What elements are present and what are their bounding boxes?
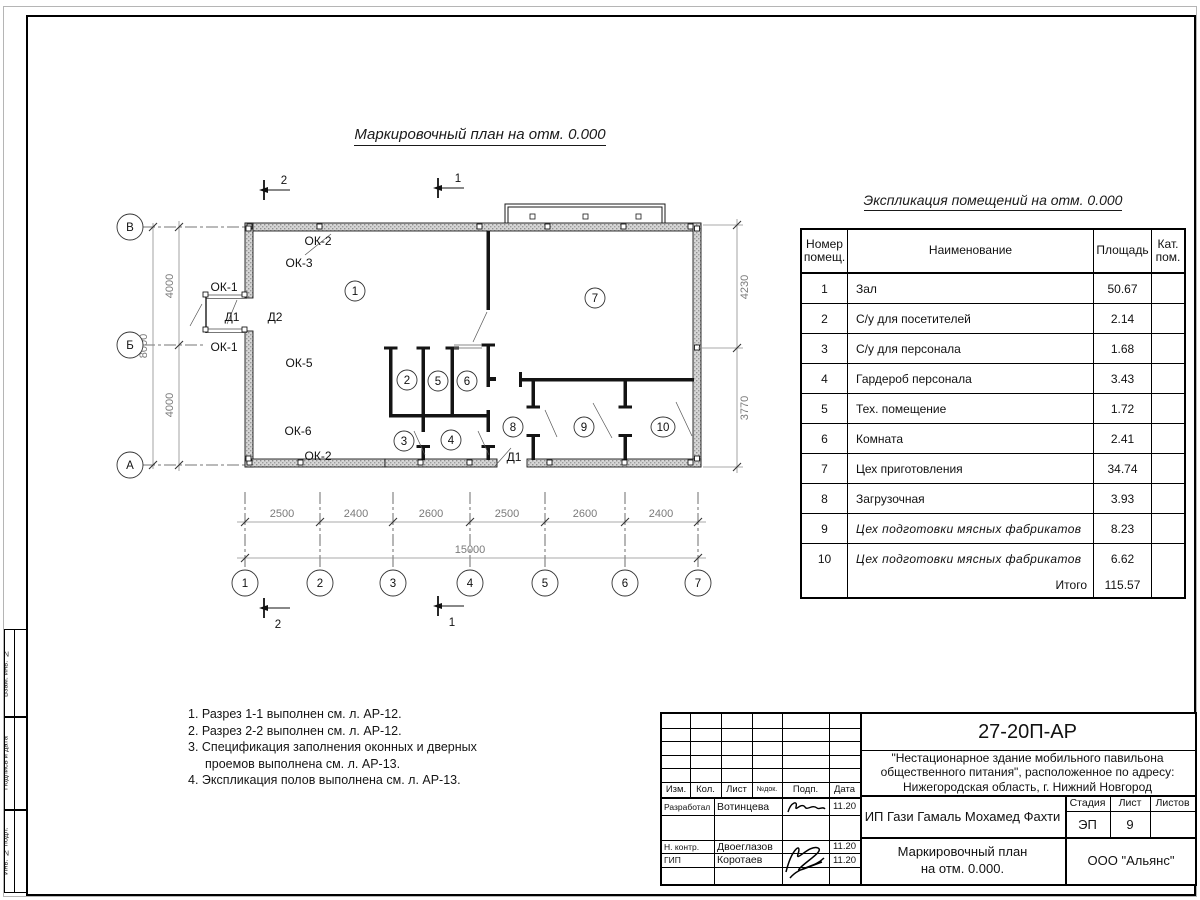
total-cat-cell	[1152, 573, 1184, 597]
project-name: "Нестационарное здание мобильного павиль…	[862, 750, 1193, 795]
room-number: 8	[510, 422, 516, 434]
room-number: 2	[404, 375, 410, 387]
room-number: 10	[657, 422, 670, 434]
dim-label: 2400	[649, 508, 673, 520]
room-name-cell: Гардероб персонала	[848, 364, 1094, 393]
section-marker-1-top: 1	[433, 173, 464, 198]
svg-text:1: 1	[449, 617, 455, 629]
role-date: 11.20	[829, 798, 860, 815]
sheets-label: Листов	[1150, 795, 1195, 811]
room-number: 6	[464, 376, 470, 388]
room-cat-cell	[1152, 394, 1184, 423]
col-izm: Изм.	[662, 782, 690, 797]
svg-text:3: 3	[390, 578, 396, 590]
room-cat-cell	[1152, 304, 1184, 333]
door-label: Д1	[225, 310, 240, 324]
wall-left-upper	[245, 223, 253, 298]
room-number: 5	[435, 376, 441, 388]
total-empty-cell	[802, 573, 848, 597]
dim-label: 2500	[495, 508, 519, 520]
title-block: Изм. Кол. Лист №док. Подп. Дата Разработ…	[660, 712, 1197, 886]
room-area-cell: 50.67	[1094, 274, 1152, 303]
room-name-cell: Зал	[848, 274, 1094, 303]
room-cat-cell	[1152, 544, 1184, 573]
col-data: Дата	[829, 782, 860, 797]
dim-label: 2600	[573, 508, 597, 520]
wall-bottom-mid	[385, 459, 497, 467]
note-line: 4. Экспликация полов выполнена см. л. АР…	[188, 772, 524, 789]
table-row: 2 С/у для посетителей 2.14	[802, 304, 1184, 334]
room-number: 1	[352, 286, 358, 298]
section-marker-2-bottom: 2	[259, 598, 290, 631]
room-number: 7	[592, 293, 598, 305]
room-name-cell: Цех подготовки мясных фабрикатов	[848, 514, 1094, 543]
dim-total-label: 15000	[455, 544, 486, 556]
window-label: ОК-1	[211, 280, 238, 294]
drawing-sheet: Взам. инв. № Подпись и дата Инв. № подл.…	[0, 0, 1200, 900]
dim-label: 4000	[164, 274, 176, 298]
room-number-cell: 3	[802, 334, 848, 363]
room-number-cell: 7	[802, 454, 848, 483]
room-name-cell: Цех приготовления	[848, 454, 1094, 483]
dim-label: 3770	[739, 396, 751, 420]
room-number: 4	[448, 435, 455, 447]
doc-number: 27-20П-АР	[860, 714, 1195, 750]
window-label: ОК-2	[305, 449, 332, 463]
section-marker-2-top: 2	[259, 175, 290, 200]
room-number-cell: 8	[802, 484, 848, 513]
sheet-title: Маркировочный план на отм. 0.000.	[860, 837, 1065, 884]
section-markers: 2 1 2 1	[259, 173, 464, 631]
room-cat-cell	[1152, 514, 1184, 543]
room-number-cell: 5	[802, 394, 848, 423]
room-number-cell: 10	[802, 544, 848, 573]
room-area-cell: 6.62	[1094, 544, 1152, 573]
room-name-cell: С/у для персонала	[848, 334, 1094, 363]
sheet-label: Лист	[1110, 795, 1150, 811]
svg-text:7: 7	[695, 578, 701, 590]
door-label: Д2	[268, 310, 283, 324]
axis-labels-left: В Б А	[126, 222, 134, 472]
client-name: ИП Гази Гамаль Мохамед Фахти	[860, 795, 1065, 837]
header-room-number: Номер помещ.	[802, 230, 848, 272]
room-legend-table: Номер помещ. Наименование Площадь Кат. п…	[800, 228, 1186, 599]
svg-text:2: 2	[281, 175, 287, 187]
svg-text:1: 1	[242, 578, 248, 590]
dim-label: 4000	[164, 393, 176, 417]
note-line: 3. Спецификация заполнения оконных и две…	[188, 739, 524, 772]
col-kol: Кол.	[690, 782, 721, 797]
note-line: 1. Разрез 1-1 выполнен см. л. АР-12.	[188, 706, 524, 723]
table-row: 8 Загрузочная 3.93	[802, 484, 1184, 514]
svg-text:5: 5	[542, 578, 548, 590]
room-cat-cell	[1152, 334, 1184, 363]
table-row: 7 Цех приготовления 34.74	[802, 454, 1184, 484]
room-name-cell: С/у для посетителей	[848, 304, 1094, 333]
room-area-cell: 2.41	[1094, 424, 1152, 453]
table-row: 4 Гардероб персонала 3.43	[802, 364, 1184, 394]
room-number-cell: 2	[802, 304, 848, 333]
table-row: 5 Тех. помещение 1.72	[802, 394, 1184, 424]
room-cat-cell	[1152, 364, 1184, 393]
header-room-name: Наименование	[848, 230, 1094, 272]
room-area-cell: 1.68	[1094, 334, 1152, 363]
role-label: ГИП	[662, 853, 714, 867]
room-markers: 1 2 3 4 5 6 7 8 9 10	[345, 281, 675, 451]
room-name-cell: Загрузочная	[848, 484, 1094, 513]
wall-left-lower	[245, 331, 253, 467]
role-date: 11.20	[829, 840, 860, 853]
room-cat-cell	[1152, 424, 1184, 453]
room-area-cell: 3.93	[1094, 484, 1152, 513]
room-cat-cell	[1152, 454, 1184, 483]
door-label: Д1	[507, 450, 522, 464]
svg-text:1: 1	[455, 173, 461, 185]
total-value: 115.57	[1094, 573, 1152, 597]
room-number-cell: 4	[802, 364, 848, 393]
dim-label: 2500	[270, 508, 294, 520]
col-podp: Подп.	[782, 782, 829, 797]
signature-votintseva	[784, 799, 828, 815]
room-name-cell: Тех. помещение	[848, 394, 1094, 423]
room-number: 9	[581, 422, 587, 434]
table-header-row: Номер помещ. Наименование Площадь Кат. п…	[802, 230, 1184, 274]
room-cat-cell	[1152, 484, 1184, 513]
wall-top	[245, 223, 701, 231]
room-area-cell: 2.14	[1094, 304, 1152, 333]
dimensions: 2500 2400 2600 2500 2600 2400 15000 4000…	[138, 219, 751, 562]
svg-text:2: 2	[275, 619, 281, 631]
stage-label: Стадия	[1065, 795, 1110, 811]
svg-text:В: В	[126, 222, 134, 234]
leader-lines	[305, 234, 692, 466]
window-label: ОК-1	[211, 340, 238, 354]
room-number-cell: 1	[802, 274, 848, 303]
svg-text:Б: Б	[126, 340, 134, 352]
dim-label: 4230	[739, 275, 751, 299]
opening-labels: ОК-2 ОК-3 ОК-1 Д1 Д2 ОК-1 ОК-5 ОК-6 ОК-2…	[211, 234, 522, 464]
room-area-cell: 34.74	[1094, 454, 1152, 483]
platform	[505, 204, 665, 223]
wall-bottom-right	[527, 459, 701, 467]
window-label: ОК-6	[285, 424, 312, 438]
axis-lines	[143, 227, 698, 572]
role-label: Разработал	[662, 798, 714, 815]
room-area-cell: 1.72	[1094, 394, 1152, 423]
role-label: Н. контр.	[662, 840, 714, 853]
company-name: ООО "Альянс"	[1067, 837, 1195, 884]
col-ndok: №док.	[752, 782, 782, 797]
room-cat-cell	[1152, 274, 1184, 303]
table-row: 3 С/у для персонала 1.68	[802, 334, 1184, 364]
table-row: 10 Цех подготовки мясных фабрикатов 6.62	[802, 544, 1184, 573]
svg-text:2: 2	[317, 578, 323, 590]
role-name: Двоеглазов	[714, 840, 782, 853]
role-name: Вотинцева	[714, 798, 782, 815]
role-name: Коротаев	[714, 853, 782, 867]
notes-block: 1. Разрез 1-1 выполнен см. л. АР-12. 2. …	[188, 706, 524, 789]
svg-text:6: 6	[622, 578, 628, 590]
room-number: 3	[401, 436, 407, 448]
role-date: 11.20	[829, 853, 860, 867]
header-room-cat: Кат. пом.	[1152, 230, 1184, 272]
signature-dvoeglazov-korotaev	[780, 838, 832, 882]
window-label: ОК-2	[305, 234, 332, 248]
table-row: 9 Цех подготовки мясных фабрикатов 8.23	[802, 514, 1184, 544]
room-number-cell: 9	[802, 514, 848, 543]
col-list: Лист	[721, 782, 752, 797]
table-row: 6 Комната 2.41	[802, 424, 1184, 454]
note-line: 2. Разрез 2-2 выполнен см. л. АР-12.	[188, 723, 524, 740]
table-total-row: Итого 115.57	[802, 573, 1184, 597]
stage-value: ЭП	[1065, 811, 1110, 837]
interior-walls	[384, 231, 694, 460]
dim-label: 2400	[344, 508, 368, 520]
header-room-area: Площадь	[1094, 230, 1152, 272]
room-name-cell: Цех подготовки мясных фабрикатов	[848, 544, 1094, 573]
window-label: ОК-3	[286, 256, 313, 270]
room-area-cell: 8.23	[1094, 514, 1152, 543]
window-label: ОК-5	[286, 356, 313, 370]
dim-label: 2600	[419, 508, 443, 520]
table-row: 1 Зал 50.67	[802, 274, 1184, 304]
svg-text:А: А	[126, 460, 134, 472]
room-number-cell: 6	[802, 424, 848, 453]
sheet-number: 9	[1110, 811, 1150, 837]
section-marker-1-bottom: 1	[433, 596, 464, 629]
svg-text:4: 4	[467, 578, 474, 590]
room-name-cell: Комната	[848, 424, 1094, 453]
room-area-cell: 3.43	[1094, 364, 1152, 393]
total-label: Итого	[848, 573, 1094, 597]
